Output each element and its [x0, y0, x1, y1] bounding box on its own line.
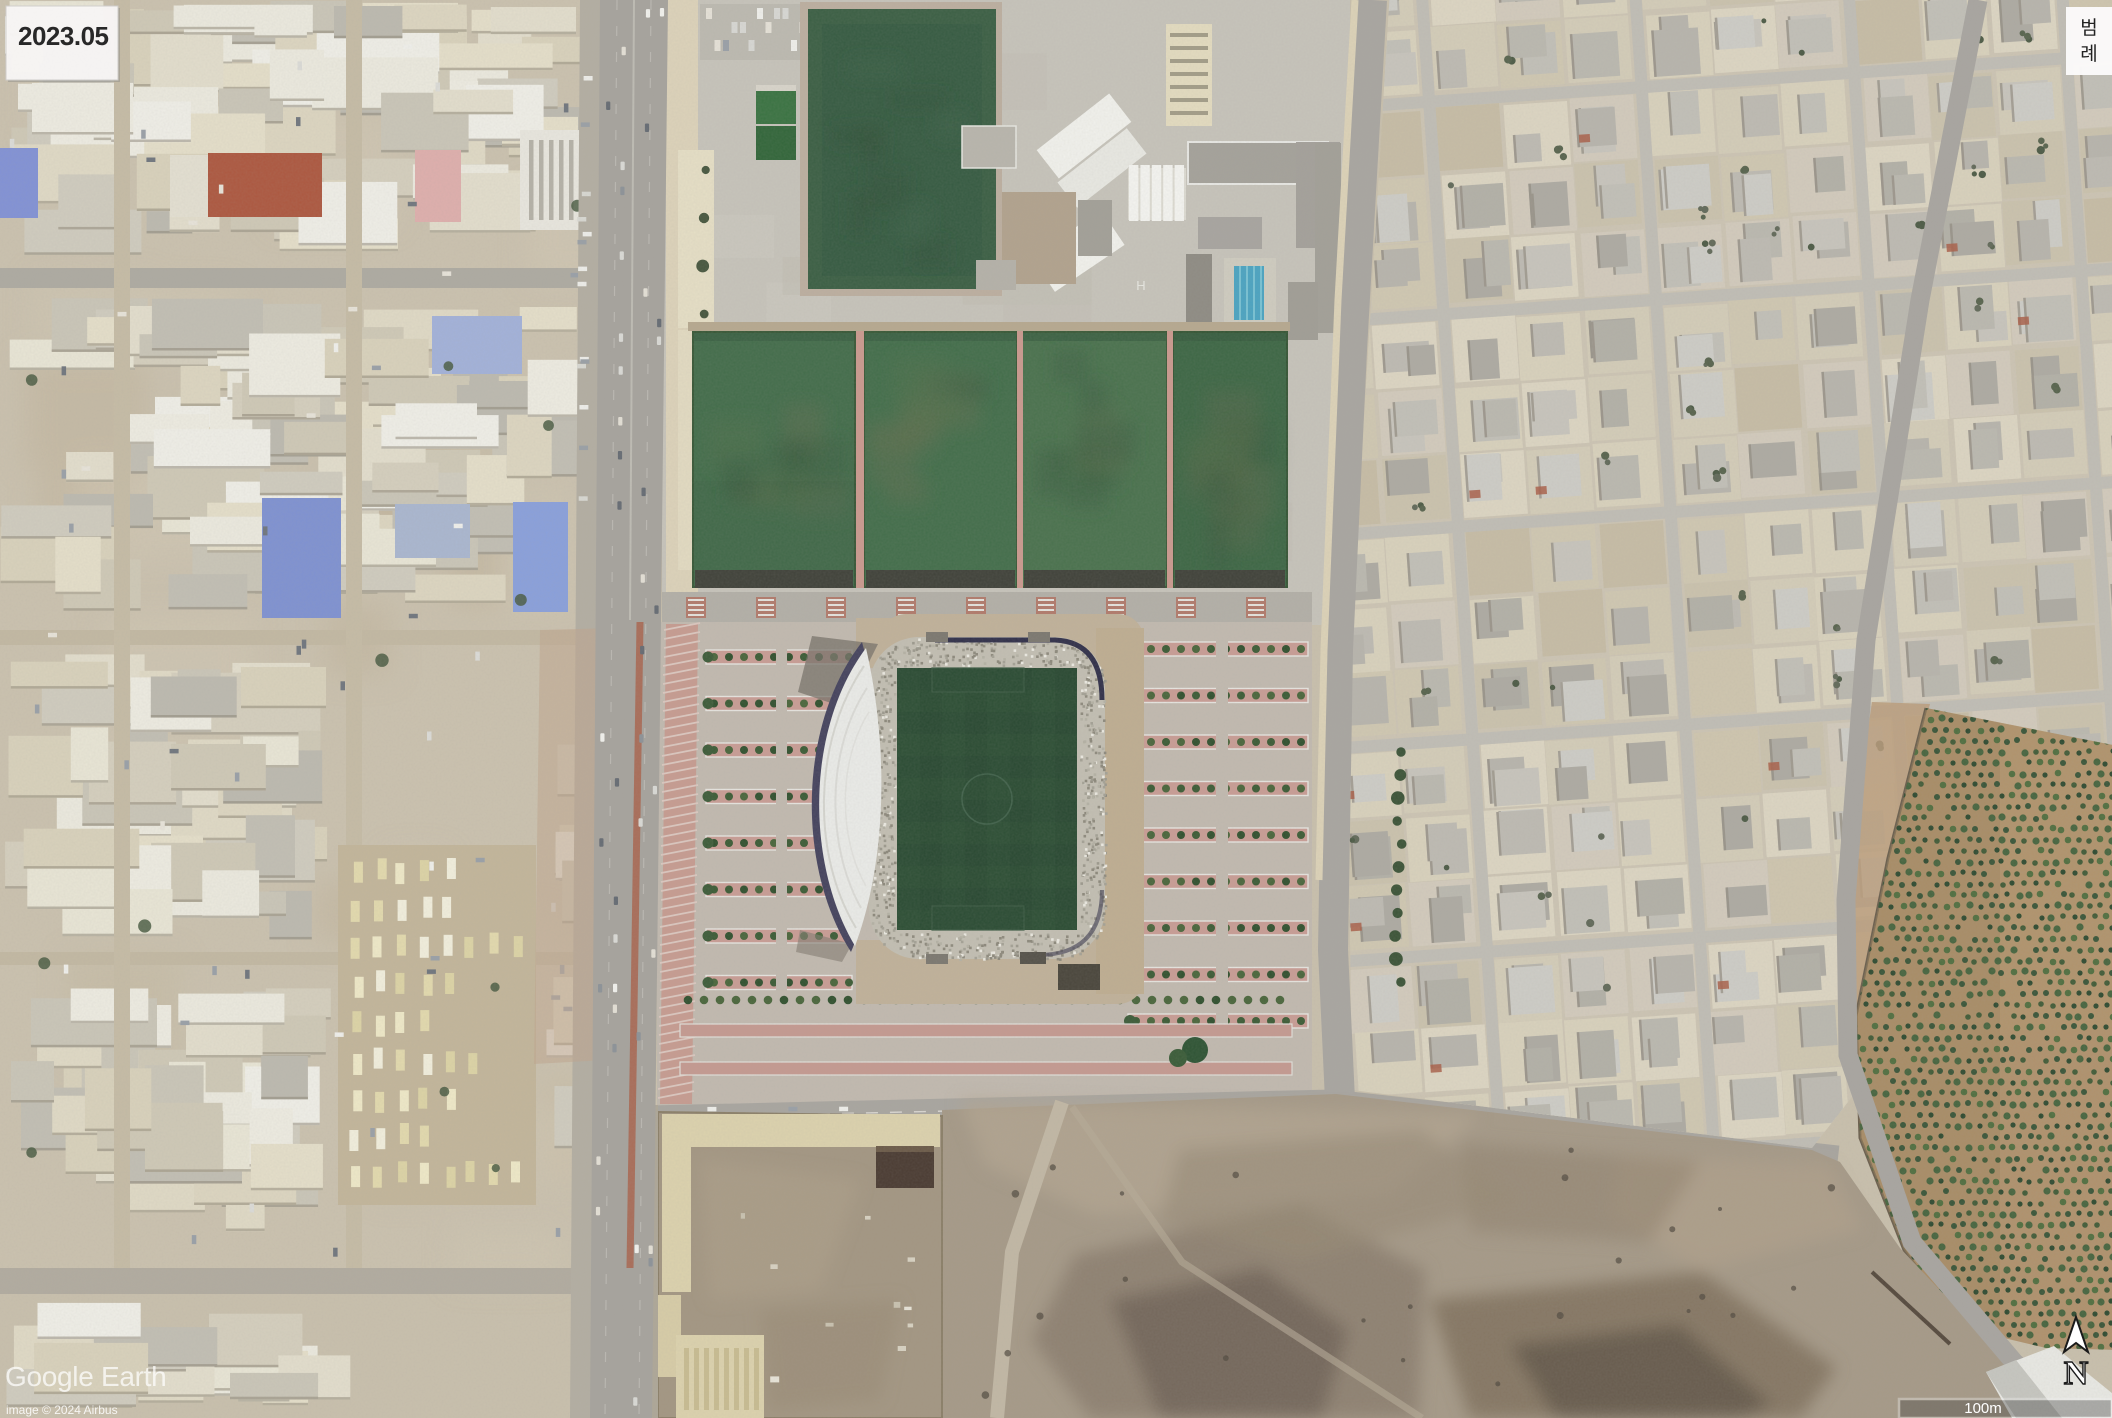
svg-text:image © 2024 Airbus: image © 2024 Airbus: [6, 1403, 118, 1417]
svg-text:2023.05: 2023.05: [18, 21, 109, 51]
svg-text:범: 범: [2080, 17, 2097, 39]
svg-text:100m: 100m: [1964, 1400, 2002, 1417]
svg-text:N: N: [2064, 1355, 2089, 1392]
svg-text:Google Earth: Google Earth: [5, 1361, 166, 1392]
svg-text:례: 례: [2080, 43, 2097, 65]
